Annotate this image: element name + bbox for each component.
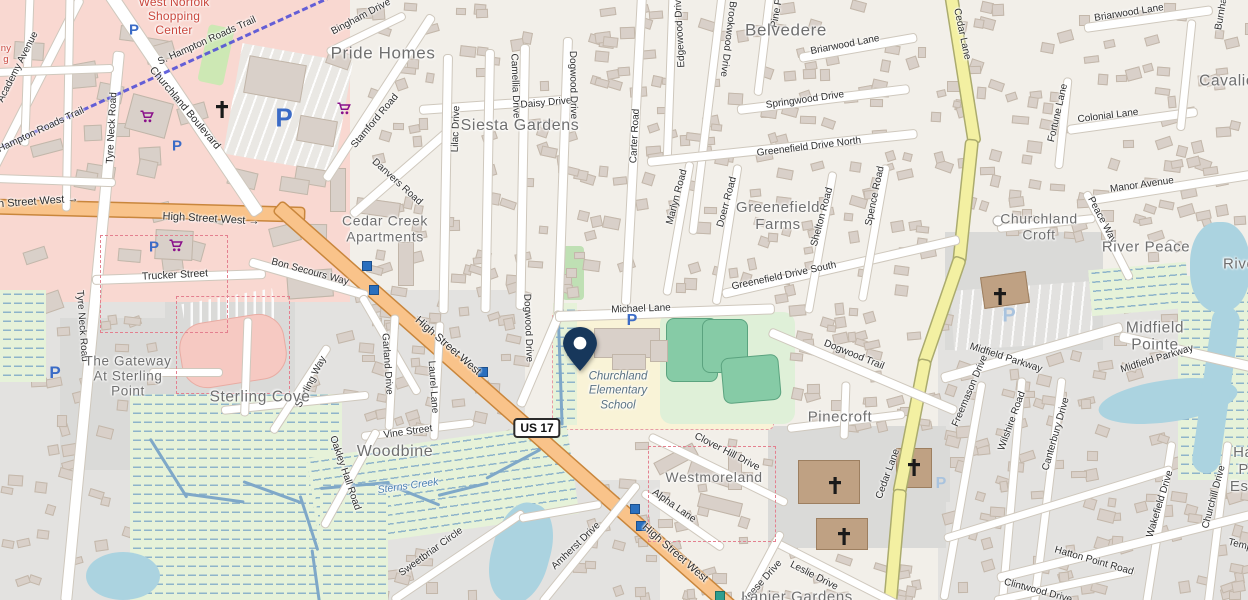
street-label: Marlyn Road bbox=[664, 168, 689, 226]
street-label: Hampton Roads Trail bbox=[0, 105, 86, 155]
place-label: Lanier Gardens bbox=[741, 590, 853, 600]
street-label: Garland Drive bbox=[379, 333, 394, 395]
street-label: Dogwood Drive bbox=[567, 51, 579, 120]
street-label: Bingham Drive bbox=[329, 0, 392, 37]
place-label: Pinecroft bbox=[808, 410, 873, 427]
street-label: Tyre Neck Road bbox=[105, 92, 120, 164]
street-label: Stamford Road bbox=[349, 92, 401, 151]
place-label: Midfield Pointe bbox=[1109, 320, 1202, 355]
street-label: High Street West → bbox=[162, 210, 259, 227]
street-label: Briarwood Lane bbox=[1094, 2, 1165, 24]
street-label: Clover Hill Drive bbox=[693, 431, 762, 473]
street-label: Cedar Lane bbox=[951, 7, 973, 60]
street-label: Dogwood Trail bbox=[822, 338, 885, 372]
place-label: Pride Homes bbox=[331, 43, 436, 62]
place-label: Churchland Croft bbox=[1000, 211, 1078, 242]
street-label: Spence Road bbox=[863, 165, 886, 227]
place-label: ny g bbox=[1, 43, 11, 65]
place-label: Westmoreland bbox=[665, 470, 762, 486]
school-label: Churchland Elementary School bbox=[589, 369, 648, 412]
place-label: Belvedere bbox=[745, 20, 827, 39]
street-label: Manor Avenue bbox=[1109, 175, 1174, 195]
place-label: Cedar Creek Apartments bbox=[342, 213, 428, 244]
street-label: Tyre Neck Road bbox=[74, 290, 90, 362]
place-label: River bbox=[1223, 257, 1248, 274]
place-label: Siesta Gardens bbox=[461, 117, 580, 135]
street-label: Daisy Drive bbox=[520, 95, 572, 110]
street-label: High Street West bbox=[413, 314, 483, 377]
street-label: Springwood Drive bbox=[765, 89, 845, 111]
street-label: Trucker Street bbox=[142, 267, 209, 282]
street-label: Burnham bbox=[1213, 0, 1231, 31]
street-label: Dogwood Drive bbox=[521, 294, 534, 363]
place-label: Greenefield Farms bbox=[736, 200, 820, 234]
place-label: Hatton Point Estates bbox=[1230, 445, 1248, 495]
street-label: Carter Road bbox=[628, 109, 642, 164]
street-label: Sweetbriar Circle bbox=[397, 525, 465, 579]
place-label: West Norfolk Shopping Center bbox=[139, 0, 210, 37]
street-label: Alpha Lane bbox=[650, 487, 698, 525]
street-label: Greenefield Drive North bbox=[756, 135, 862, 159]
labels-layer: High Street West →High Street West →High… bbox=[0, 0, 1248, 600]
street-label: Hatton Point Road bbox=[1053, 544, 1135, 577]
us-17-route-shield: US 17 bbox=[513, 418, 560, 438]
street-label: Vine Street bbox=[383, 423, 433, 441]
street-label: Cedar Lane bbox=[874, 448, 902, 501]
street-label: Churchill Drive bbox=[1200, 464, 1227, 530]
street-label: Greenefield Drive South bbox=[731, 260, 838, 293]
place-label: Cavalier bbox=[1199, 72, 1248, 89]
street-label: Peace Way bbox=[1085, 195, 1119, 245]
street-label: Clintwood Drive bbox=[1003, 577, 1073, 600]
street-label: Academy Avenue bbox=[0, 30, 41, 104]
place-label: River Peace bbox=[1102, 240, 1190, 257]
street-label: High Street West bbox=[640, 521, 710, 584]
street-label: Wilshire Road bbox=[996, 390, 1028, 452]
street-label: Temple bbox=[1227, 537, 1248, 555]
street-label: Fortune Lane bbox=[1046, 83, 1070, 143]
street-label: Wakefield Drive bbox=[1145, 469, 1176, 539]
street-label: Amherst Drive bbox=[549, 520, 602, 572]
street-label: Churchland Boulevard bbox=[147, 64, 223, 151]
place-label: The Gateway At Sterling Point bbox=[85, 353, 172, 398]
location-pin-icon[interactable] bbox=[563, 327, 597, 371]
map-canvas[interactable]: PPPPPPPP High Street West →High Street W… bbox=[0, 0, 1248, 600]
place-label: Woodbine bbox=[357, 443, 434, 461]
street-label: Camellia Drive bbox=[508, 53, 521, 118]
street-label: Danvers Road bbox=[370, 157, 425, 208]
street-label: Freemason Drive bbox=[950, 354, 990, 429]
street-label: Canterbury Drive bbox=[1040, 396, 1071, 472]
street-label: Laurel Lane bbox=[426, 360, 441, 413]
street-label: Brookwood Drive bbox=[718, 1, 738, 78]
water-label: Sterns Creek bbox=[377, 476, 439, 496]
place-label: Sterling Cove bbox=[210, 388, 311, 405]
street-label: Colonial Lane bbox=[1077, 107, 1139, 125]
street-label: Edgewood Drive bbox=[673, 0, 688, 68]
street-label: Bon Secours Way bbox=[270, 256, 350, 287]
street-label: High Street West → bbox=[0, 193, 79, 212]
street-label: Michael Lane bbox=[611, 302, 671, 315]
